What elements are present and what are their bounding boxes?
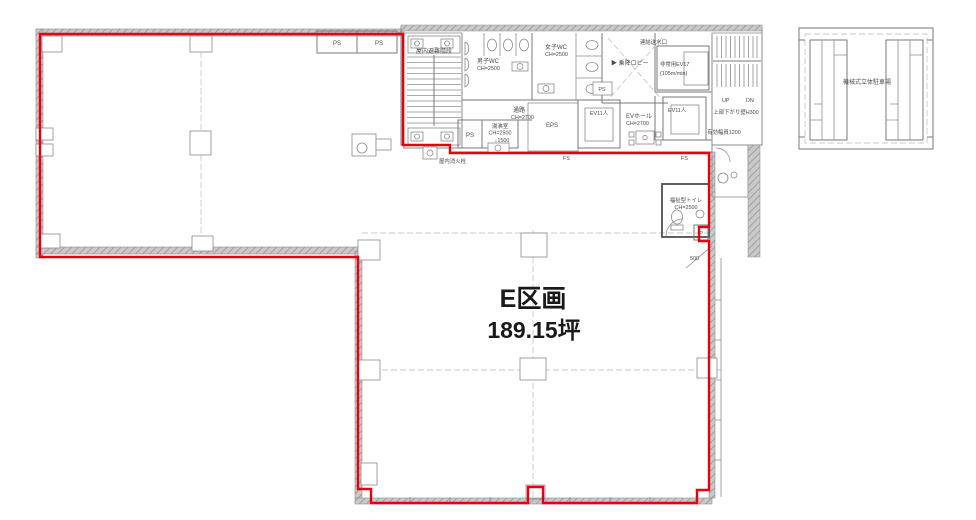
- label-womens-wc-ch: CH=2500: [545, 52, 568, 58]
- label-ev-hall-ch: CH=2700: [626, 121, 649, 127]
- label-ps1: PS: [333, 41, 341, 47]
- label-ev-b: EV11人: [668, 107, 687, 114]
- section-boundary-red-outline: [40, 34, 709, 503]
- mens-wc: 男子WC CH=2500: [465, 33, 529, 87]
- mechanical-parking: 機械式立体駐車場: [799, 28, 933, 149]
- floor-plan-page: 屋内避難階段 男子WC CH=2500 女子WC CH=2500 PS ▶ 乗降…: [0, 0, 976, 520]
- label-ps-core: PS: [466, 133, 474, 139]
- label-eps: EPS: [546, 123, 558, 129]
- label-kitchenette: 湯沸室: [492, 122, 509, 130]
- label-mens-wc: 男子WC: [477, 58, 500, 65]
- elevator-lobby: ▶ 乗降ロビー 連結送水口: [608, 38, 667, 100]
- floor-plan-drawing: 屋内避難階段 男子WC CH=2500 女子WC CH=2500 PS ▶ 乗降…: [0, 0, 976, 520]
- label-emergency-ev: 非常用EV17: [660, 60, 689, 68]
- right-stairs: UP DN 上部下がり壁H300 有効幅員1200: [707, 33, 762, 145]
- label-ev-a: EV11人: [590, 110, 609, 117]
- label-mens-wc-ch: CH=2500: [477, 66, 500, 72]
- emergency-elevator: 非常用EV17 (105m/min): [657, 46, 709, 90]
- label-ev-hall: EVホール: [626, 113, 652, 120]
- label-accessible-wc-ch: CH=2500: [675, 205, 698, 211]
- label-kitchenette-ch: CH=2500: [489, 131, 512, 137]
- elevators: EV11人 EV11人 EVホール CH=2700: [578, 97, 706, 148]
- corridor-area: 通路 CH=2700 PS 湯沸室 CH=2500 ↓1500 EPS: [458, 103, 578, 153]
- label-accessible-wc: 福祉型トイレ: [670, 196, 702, 204]
- label-dn: DN: [746, 98, 754, 104]
- label-ps2: PS: [375, 41, 383, 47]
- evacuation-stairs: 屋内避難階段: [404, 33, 462, 148]
- label-stair-note2: 有効幅員1200: [707, 128, 741, 136]
- label-evacuation-stairs: 屋内避難階段: [416, 47, 452, 55]
- label-womens-wc: 女子WC: [545, 43, 568, 51]
- parking-label: 機械式立体駐車場: [843, 78, 891, 86]
- label-fs1: FS: [563, 156, 570, 162]
- label-corridor: 通路: [513, 106, 525, 114]
- label-hydrant: 屋内消火栓: [439, 157, 467, 165]
- fire-equipment: 屋内消火栓 FS FS: [423, 147, 688, 165]
- label-ps-lobby: PS: [598, 87, 606, 93]
- womens-wc: 女子WC CH=2500 PS: [538, 33, 612, 100]
- label-emergency-ev-speed: (105m/min): [660, 71, 687, 77]
- core-top-wall: [401, 25, 762, 31]
- section-name-label: E区画: [500, 285, 567, 313]
- label-standpipe: 連結送水口: [640, 38, 667, 46]
- label-stair-note1: 上部下がり壁H300: [713, 108, 758, 116]
- label-fs2: FS: [681, 156, 688, 162]
- section-area-label: 189.15坪: [487, 317, 580, 343]
- left-wing-fittings: PS PS: [36, 31, 397, 251]
- label-dim-500: 500: [690, 256, 699, 262]
- label-up: UP: [722, 98, 730, 104]
- label-lobby: ▶ 乗降ロビー: [611, 59, 649, 67]
- lower-block-structure: [355, 230, 722, 504]
- right-service-room: [712, 145, 760, 257]
